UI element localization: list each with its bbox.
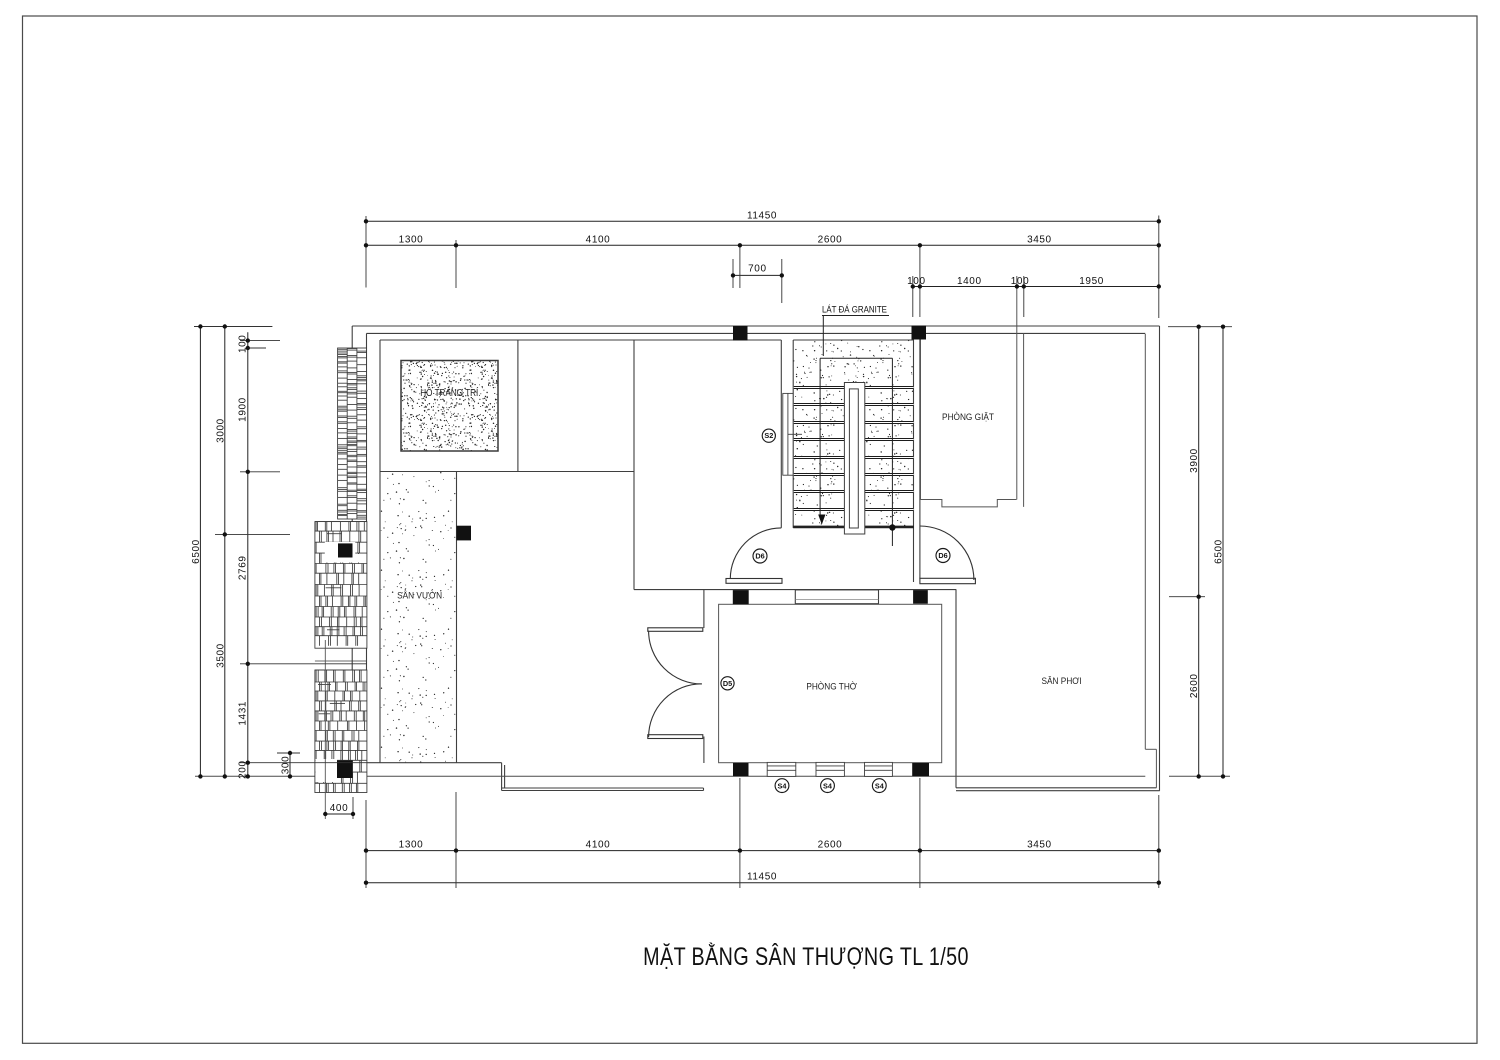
- svg-text:LÁT ĐÁ GRANITE: LÁT ĐÁ GRANITE: [822, 304, 887, 315]
- svg-text:1400: 1400: [957, 276, 982, 287]
- svg-text:200: 200: [238, 760, 249, 779]
- svg-text:700: 700: [748, 264, 767, 275]
- svg-text:PHÒNG GIẶT: PHÒNG GIẶT: [942, 412, 994, 423]
- svg-text:300: 300: [281, 756, 292, 775]
- svg-text:4100: 4100: [586, 235, 611, 246]
- svg-text:S2: S2: [764, 431, 773, 440]
- svg-text:2600: 2600: [818, 839, 843, 850]
- svg-text:6500: 6500: [1214, 539, 1225, 564]
- svg-text:4100: 4100: [586, 839, 611, 850]
- svg-text:2769: 2769: [238, 555, 249, 580]
- svg-text:SÂN PHƠI: SÂN PHƠI: [1042, 676, 1082, 687]
- svg-text:1900: 1900: [238, 397, 249, 422]
- svg-text:2600: 2600: [818, 235, 843, 246]
- svg-text:1300: 1300: [399, 235, 424, 246]
- svg-text:D6: D6: [755, 552, 764, 561]
- svg-text:1431: 1431: [238, 701, 249, 726]
- svg-text:3450: 3450: [1027, 235, 1052, 246]
- svg-text:D6: D6: [938, 551, 947, 560]
- svg-text:3900: 3900: [1189, 448, 1200, 473]
- svg-text:S4: S4: [778, 781, 788, 790]
- svg-text:100: 100: [907, 276, 926, 287]
- svg-text:PHÒNG THỜ: PHÒNG THỜ: [806, 681, 857, 692]
- svg-text:1950: 1950: [1079, 276, 1104, 287]
- svg-text:D5: D5: [723, 679, 732, 688]
- svg-text:SÂN VƯỜN: SÂN VƯỜN: [397, 590, 442, 601]
- svg-text:2600: 2600: [1189, 673, 1200, 698]
- svg-text:S4: S4: [875, 781, 885, 790]
- svg-text:400: 400: [330, 803, 349, 814]
- svg-text:1300: 1300: [399, 839, 424, 850]
- svg-text:3000: 3000: [215, 418, 226, 443]
- svg-text:MẶT BẰNG SÂN THƯỢNG TL 1/50: MẶT BẰNG SÂN THƯỢNG TL 1/50: [643, 943, 969, 971]
- svg-text:11450: 11450: [747, 211, 777, 222]
- svg-text:HỒ TRANG TRÍ.: HỒ TRANG TRÍ.: [420, 386, 480, 398]
- svg-text:S4: S4: [823, 781, 833, 790]
- svg-text:100: 100: [1011, 276, 1030, 287]
- svg-text:11450: 11450: [747, 872, 777, 883]
- svg-text:100: 100: [238, 335, 249, 354]
- svg-text:6500: 6500: [191, 539, 202, 564]
- svg-text:3500: 3500: [215, 643, 226, 668]
- svg-text:3450: 3450: [1027, 839, 1052, 850]
